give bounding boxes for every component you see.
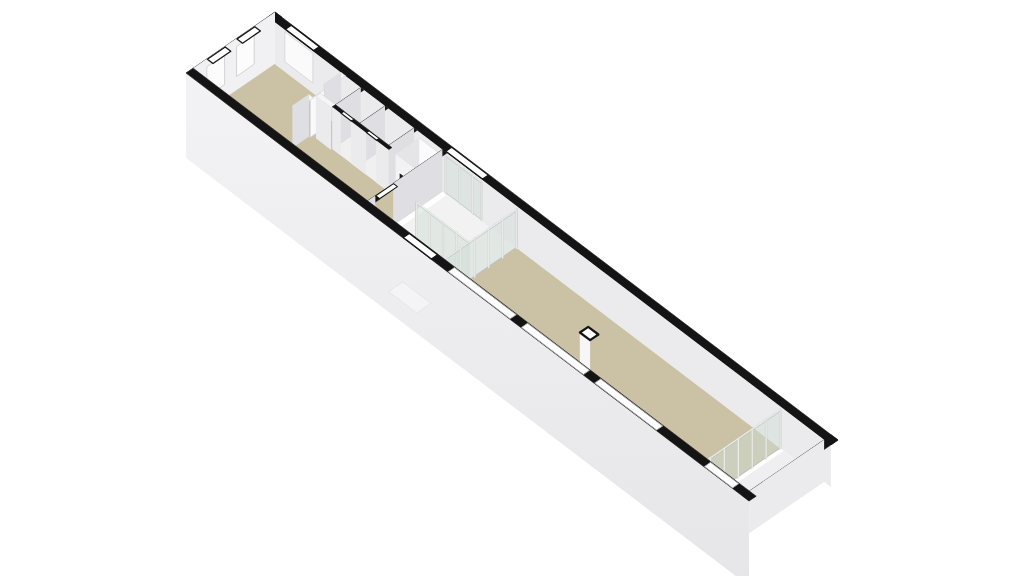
vestibule-glass-front-mullion	[474, 237, 475, 278]
vestibule-glass-side-mullion	[442, 221, 443, 260]
vestibule-glass-front-mullion	[516, 209, 517, 250]
entry-glazing-inner-mullion	[481, 181, 482, 222]
entry-glazing-inner-mullion	[445, 154, 446, 195]
entry-glazing-inner-mullion	[459, 164, 460, 205]
entry-glazing-inner-mullion	[472, 174, 473, 215]
vestibule-glass-front-mullion	[502, 218, 504, 259]
vestibule-glass-front-mullion	[488, 228, 489, 269]
end-room-glass-mullion	[738, 438, 740, 479]
end-room-glass-mullion	[765, 418, 766, 459]
vestibule-glass-side-mullion	[416, 201, 417, 240]
end-room-glass-mullion	[752, 428, 753, 469]
floor-plan-3d-view	[0, 0, 1024, 576]
building-render	[186, 12, 838, 576]
floor-plan-canvas	[0, 0, 1024, 576]
end-room-glass-mullion	[779, 409, 780, 450]
bathroom-wall-face	[332, 107, 341, 156]
vestibule-glass-side-mullion	[429, 211, 430, 250]
